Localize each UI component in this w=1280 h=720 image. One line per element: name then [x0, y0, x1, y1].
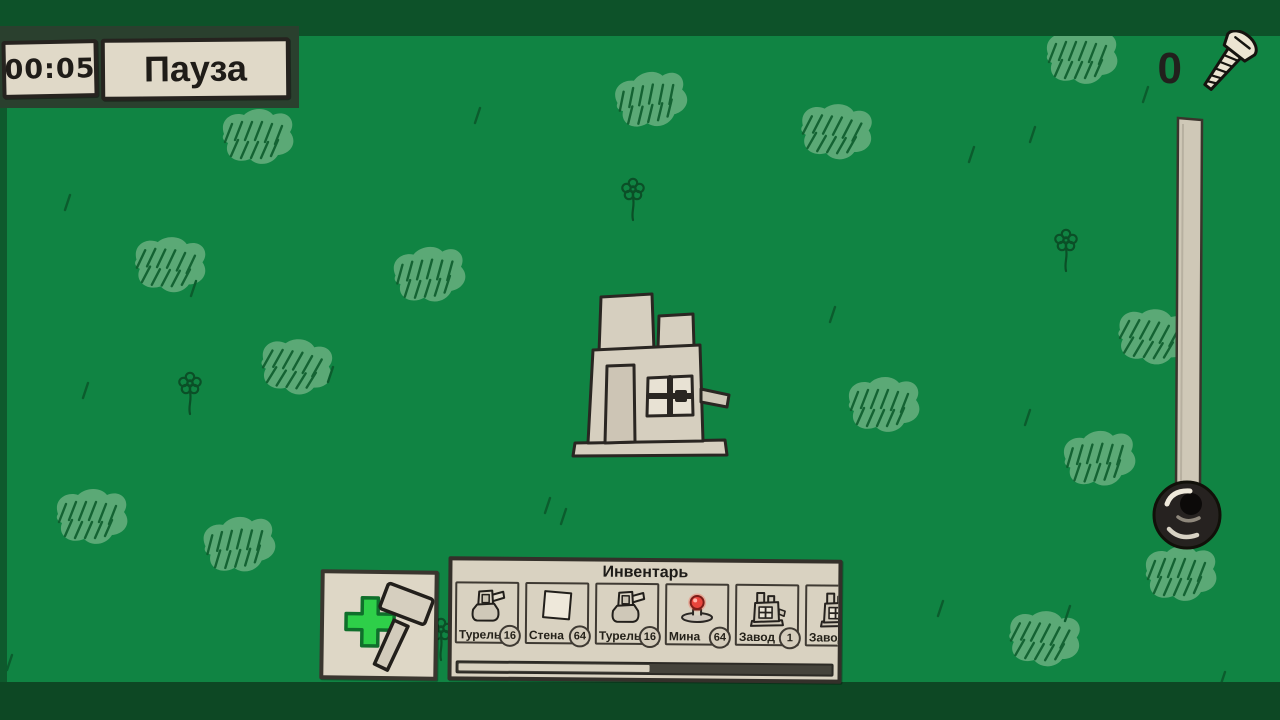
inventory-slot[interactable]: Турель 16	[595, 583, 660, 646]
grass-tuft	[201, 513, 278, 576]
factory-icon	[745, 588, 789, 628]
inventory-scrollbar-track[interactable]	[456, 660, 834, 676]
screw-icon	[1188, 30, 1278, 120]
wall-icon	[535, 586, 579, 626]
map-edge-left	[0, 36, 7, 682]
lever	[1145, 108, 1235, 568]
flower-doodle	[1055, 230, 1076, 271]
slot-label: Мина	[669, 629, 700, 643]
turret-icon	[605, 587, 649, 627]
grass-dash	[938, 601, 943, 616]
grass-dash	[969, 147, 974, 162]
grass-dash	[83, 383, 88, 398]
screw-counter: 0	[1130, 30, 1280, 120]
inventory-panel: Инвентарь Турель 16 Стена 64 Турель 16 М…	[447, 556, 842, 683]
timer-value: 00:05	[4, 53, 96, 86]
grass-dash	[1030, 127, 1035, 142]
grass-tuft	[133, 235, 207, 295]
grass-dash	[1065, 606, 1070, 621]
flower-doodle	[622, 179, 643, 220]
slot-label: Турель	[599, 629, 642, 643]
inventory-slot[interactable]: Турель 16	[455, 581, 520, 644]
inventory-slot[interactable]: Завод 1	[735, 584, 800, 647]
inventory-title: Инвентарь	[452, 561, 838, 583]
lever-pole	[1176, 118, 1202, 488]
inventory-slot[interactable]: Мина 64	[665, 583, 730, 646]
build-button[interactable]	[319, 569, 439, 681]
mine-icon	[675, 587, 719, 627]
grass-dash	[830, 307, 835, 322]
slot-label: Стена	[529, 628, 564, 642]
grass-dash	[545, 498, 550, 513]
grass-tuft	[392, 243, 468, 305]
grass-dash	[475, 108, 480, 123]
slot-count-badge: 1	[779, 627, 801, 649]
grass-tuft	[223, 109, 294, 164]
timer-display: 00:05	[1, 39, 98, 99]
slot-count-badge: 16	[499, 625, 521, 647]
grass-tuft	[1006, 607, 1082, 669]
grass-tuft	[57, 489, 128, 544]
inventory-slot[interactable]: Завод	[805, 584, 843, 647]
grass-tuft	[258, 334, 336, 398]
grass-tuft	[798, 100, 874, 162]
slot-count-badge: 64	[709, 627, 731, 649]
screw-count: 0	[1130, 44, 1182, 94]
inventory-scrollbar-thumb[interactable]	[459, 663, 650, 672]
flower-doodle	[179, 373, 200, 414]
grass-tuft	[1062, 428, 1137, 489]
slot-count-badge: 16	[639, 626, 661, 648]
grass-tuft	[849, 377, 920, 432]
grass-dash	[561, 509, 566, 524]
turret-icon	[465, 585, 509, 625]
grass-dash	[328, 367, 333, 382]
slot-label: Завод	[809, 630, 843, 644]
slot-label: Завод	[739, 630, 775, 644]
pause-label: Пауза	[144, 48, 247, 91]
map-edge-bottom	[0, 682, 1280, 720]
slot-label: Турель	[459, 627, 502, 641]
grass-dash	[1025, 410, 1030, 425]
grass-tuft	[612, 66, 691, 132]
game-screen: { "hud": { "timer": "00:05", "pause_labe…	[0, 0, 1280, 720]
grass-dash	[7, 655, 12, 670]
inventory-slot[interactable]: Стена 64	[525, 582, 590, 645]
factory-icon	[815, 588, 843, 628]
slot-count-badge: 64	[569, 625, 591, 647]
factory-building[interactable]	[555, 278, 755, 468]
grass-dash	[65, 195, 70, 210]
pause-button[interactable]: Пауза	[101, 37, 291, 101]
grass-dash	[191, 281, 196, 296]
lever-knob[interactable]	[1154, 482, 1220, 548]
inventory-slots: Турель 16 Стена 64 Турель 16 Мина 64 Зав…	[452, 581, 839, 646]
grass-tuft	[1047, 29, 1118, 84]
